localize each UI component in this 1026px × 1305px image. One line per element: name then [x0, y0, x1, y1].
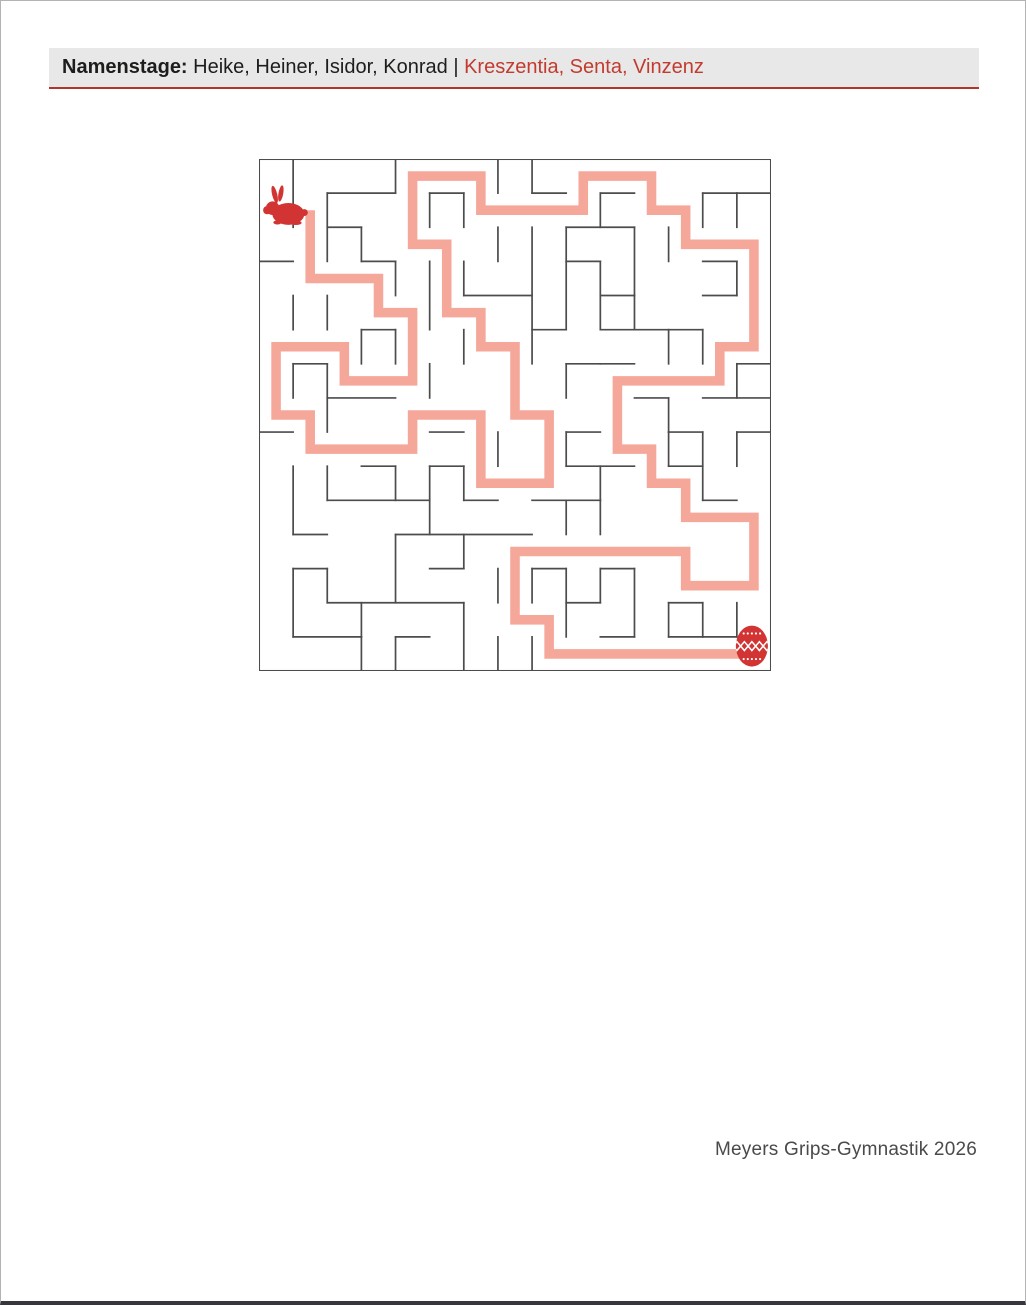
maze-puzzle — [259, 159, 771, 671]
nameday-names: Heike, Heiner, Isidor, Konrad — [188, 56, 454, 79]
nameday-label: Namenstage: — [62, 56, 188, 79]
maze-svg — [259, 159, 771, 671]
solution-path-layer — [276, 176, 754, 654]
easter-egg-icon — [733, 626, 771, 667]
header-red-rule — [49, 87, 979, 89]
nameday-names-red: Kreszentia, Senta, Vinzenz — [459, 56, 704, 79]
nameday-header-bar: Namenstage: Heike, Heiner, Isidor, Konra… — [49, 48, 979, 87]
rabbit-icon — [263, 185, 308, 225]
footer-credit: Meyers Grips-Gymnastik 2026 — [715, 1139, 977, 1161]
